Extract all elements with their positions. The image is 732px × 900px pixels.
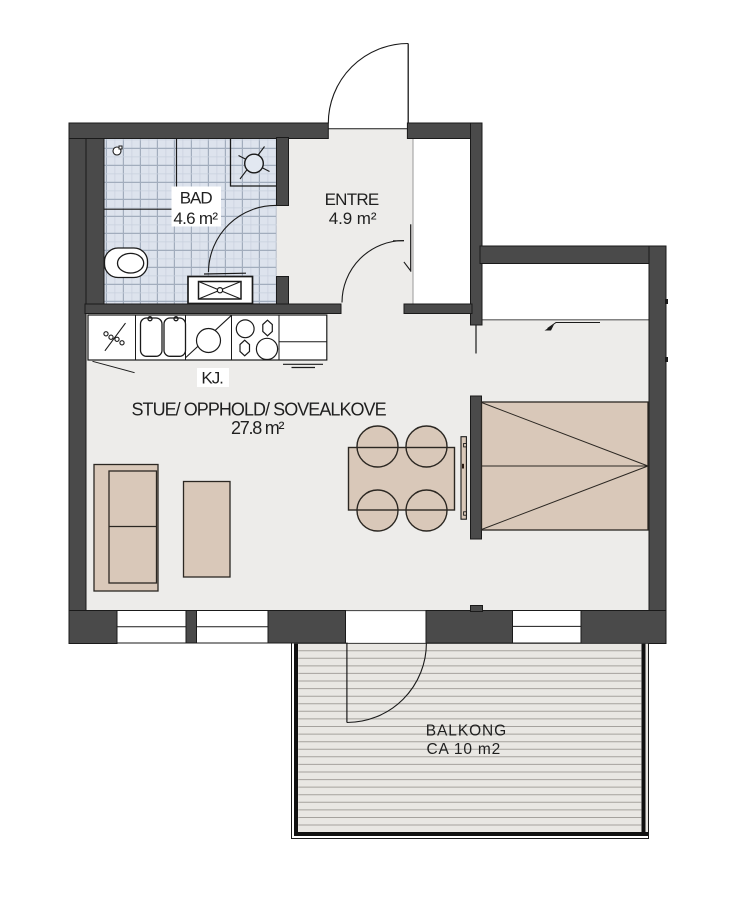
- svg-text:KJ.: KJ.: [201, 369, 224, 388]
- svg-text:BALKONG: BALKONG: [426, 723, 506, 740]
- svg-text:BAD: BAD: [180, 189, 213, 208]
- svg-text:ENTRE: ENTRE: [325, 190, 380, 209]
- svg-text:CA 10 m2: CA 10 m2: [427, 741, 501, 758]
- svg-text:4.6 m²: 4.6 m²: [173, 209, 218, 228]
- svg-text:27.8 m²: 27.8 m²: [231, 418, 285, 438]
- svg-text:STUE/ OPPHOLD/ SOVEALKOVE: STUE/ OPPHOLD/ SOVEALKOVE: [132, 400, 387, 420]
- svg-text:4.9 m²: 4.9 m²: [329, 209, 377, 228]
